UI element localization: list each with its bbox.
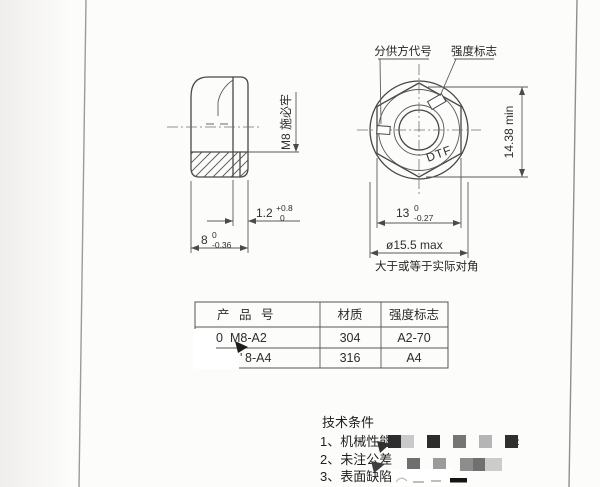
across-flats-tol-lower: -0.27 [414, 213, 434, 223]
thread-callout: M8 施必牢 [278, 92, 299, 152]
tech-heading: 技术条件 [322, 415, 374, 430]
mosaic-tail-mark: : [517, 437, 520, 448]
across-flats-value: 13 [396, 206, 410, 220]
face-mark-text: DTF [424, 143, 454, 165]
table-header-product: 产 品 号 [217, 308, 276, 322]
sheet-border-right [569, 0, 577, 487]
nut-height-tol-lower: -0.36 [212, 240, 232, 250]
table-header-strength: 强度标志 [389, 307, 439, 322]
diagonal-note: 大于或等于实际对角 [375, 259, 479, 273]
across-corners-value: 14.38 min [502, 106, 516, 159]
product-prefix-fragment: ' [240, 351, 242, 365]
front-view: DTF 分供方代号 强度标志 14.38 min [357, 44, 528, 273]
table-header-material: 材质 [337, 308, 362, 322]
strength-mark-label: 强度标志 [451, 44, 497, 58]
supplier-code-label: 分供方代号 [374, 44, 432, 58]
hex-chamfer-curve [218, 80, 233, 116]
flange-thickness-tol-upper: +0.8 [276, 203, 293, 213]
scanned-drawing-sheet: M8 施必牢 1.2 +0.8 0 8 0 [0, 0, 600, 487]
redaction-box [391, 469, 453, 486]
strength-mark-callout: 强度标志 [440, 44, 497, 96]
redaction-box [193, 349, 239, 369]
material-cell: 316 [340, 351, 361, 365]
redaction-mosaic-row1: : [388, 435, 520, 448]
table-row: C0 M8-A2 304 A2-70 [207, 331, 431, 345]
across-flats-tol-upper: 0 [414, 203, 419, 213]
nut-height-tol-upper: 0 [212, 230, 217, 240]
section-view: M8 施必牢 1.2 +0.8 0 8 0 [167, 77, 300, 253]
table-row: ' 8-A4 316 A4 [240, 351, 422, 365]
leader-arrowhead [293, 144, 299, 152]
technical-conditions: 技术条件 1、机械性能 2、未注公差 3、表面缺陷: : [320, 415, 520, 486]
strength-cell: A2-70 [397, 331, 430, 345]
dim-nut-height: 8 0 -0.36 [191, 181, 248, 253]
sheet-border-left [79, 0, 86, 487]
strength-cell: A4 [406, 351, 421, 365]
thread-spec-label: M8 施必牢 [278, 94, 293, 150]
supplier-code-mark [377, 126, 391, 135]
flange-thickness-tol-lower: 0 [280, 213, 285, 223]
black-dash-redaction [450, 478, 467, 483]
redaction-row3 [391, 469, 467, 486]
tech-item-3: 3、表面缺陷: [320, 469, 396, 484]
product-cell: 8-A4 [245, 351, 271, 365]
flange-thickness-value: 1.2 [256, 206, 273, 220]
redaction-box [193, 329, 216, 350]
nut-height-value: 8 [201, 233, 208, 247]
flange-nut-drawing: M8 施必牢 1.2 +0.8 0 8 0 [0, 0, 600, 487]
section-hatching [168, 152, 265, 177]
strength-mark-rect [428, 94, 446, 110]
material-cell: 304 [340, 331, 361, 345]
product-table: 产 品 号 材质 强度标志 C0 M8-A2 304 A2-70 ' 8-A4 … [193, 302, 448, 369]
flange-diameter-value: ø15.5 max [386, 238, 443, 252]
